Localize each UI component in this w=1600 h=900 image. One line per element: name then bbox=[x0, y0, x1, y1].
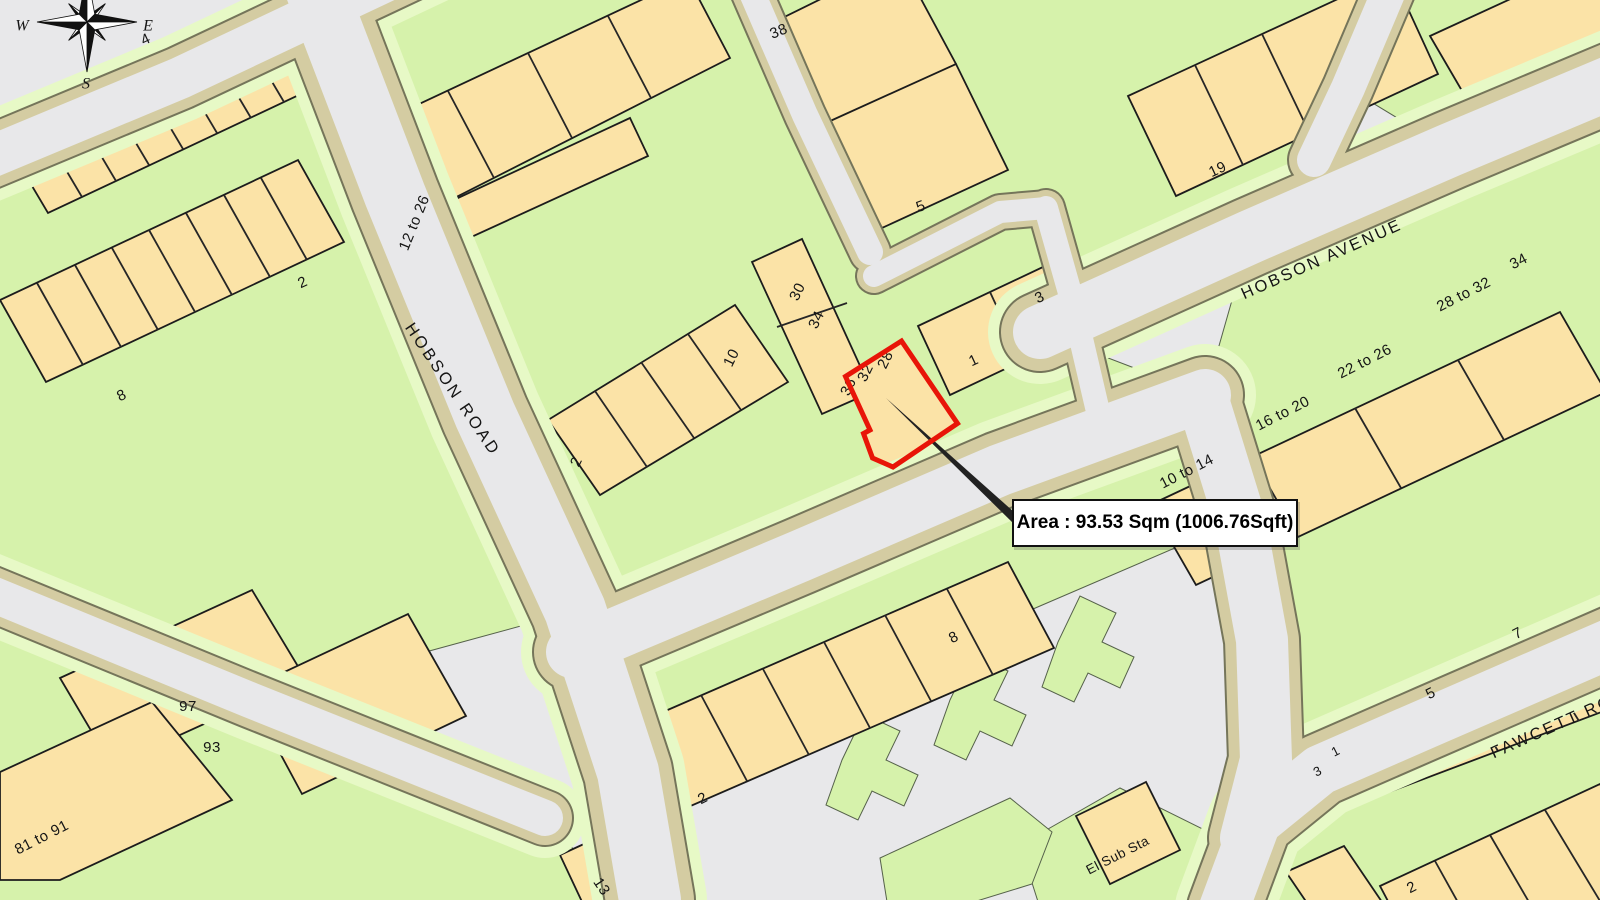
map-label: 93 bbox=[203, 739, 221, 756]
compass-point bbox=[37, 14, 87, 22]
area-callout: Area : 93.53 Sqm (1006.76Sqft) bbox=[1012, 499, 1298, 547]
compass-point bbox=[79, 22, 87, 72]
compass-letter: S bbox=[82, 76, 90, 93]
garden-comb bbox=[1042, 596, 1134, 702]
compass-point bbox=[87, 22, 95, 72]
compass-point bbox=[87, 14, 137, 22]
compass-point bbox=[87, 22, 137, 30]
map-viewport: HOBSON ROADHOBSON AVENUEFAWCETT ROAD4281… bbox=[0, 0, 1600, 900]
area-callout-text: Area : 93.53 Sqm (1006.76Sqft) bbox=[1017, 512, 1294, 534]
map-canvas: HOBSON ROADHOBSON AVENUEFAWCETT ROAD4281… bbox=[0, 0, 1600, 900]
compass-point bbox=[37, 22, 87, 30]
garden-comb bbox=[880, 798, 1052, 900]
compass-letter: E bbox=[142, 18, 153, 35]
compass-letter: W bbox=[15, 18, 30, 35]
map-label: 97 bbox=[179, 698, 197, 715]
